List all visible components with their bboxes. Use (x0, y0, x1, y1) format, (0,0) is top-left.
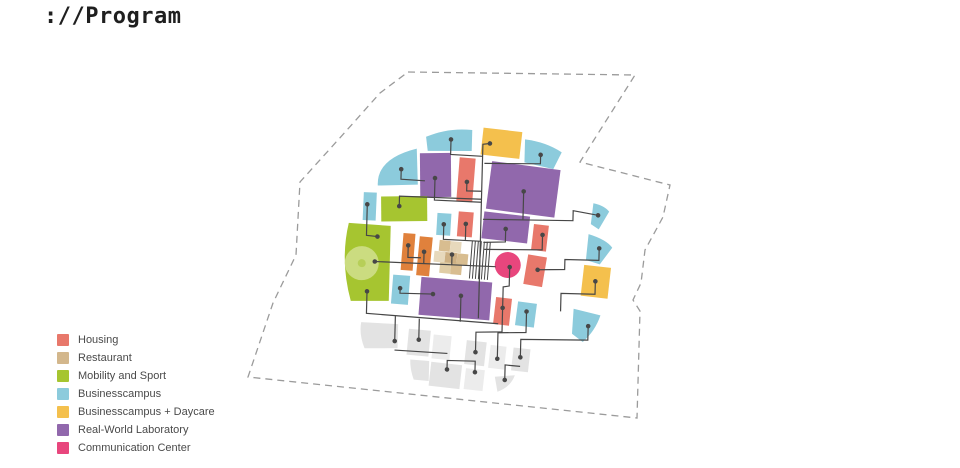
legend-label: Restaurant (78, 352, 132, 364)
legend-item: Businesscampus + Daycare (57, 403, 215, 421)
hatch-line (487, 242, 490, 280)
legend-swatch (57, 334, 69, 346)
legend-swatch (57, 388, 69, 400)
housing-s4 (523, 254, 547, 287)
legend-label: Communication Center (78, 442, 191, 454)
diagram-cluster (341, 124, 615, 395)
hatch-line (484, 242, 487, 280)
legend-label: Housing (78, 334, 118, 346)
restaurant-cell (456, 253, 468, 265)
restaurant-cell (433, 251, 445, 263)
comm-circle (494, 252, 521, 279)
restaurant-cell (439, 240, 451, 252)
connector-line (523, 191, 524, 219)
hatch-line (472, 241, 475, 279)
lab-bottom (418, 277, 492, 320)
ghost-block (429, 362, 463, 389)
legend-item: Mobility and Sport (57, 367, 215, 385)
legend-swatch (57, 442, 69, 454)
connector-line (375, 262, 496, 267)
campus-small-left (363, 192, 377, 221)
legend-label: Businesscampus + Daycare (78, 406, 215, 418)
campus-arc-top-right (524, 139, 562, 169)
legend-swatch (57, 406, 69, 418)
ghost-block (431, 334, 451, 360)
legend-item: Housing (57, 331, 215, 349)
legend-item: Businesscampus (57, 385, 215, 403)
mobility-upper (381, 196, 427, 221)
legend-swatch (57, 370, 69, 382)
program-slide: ://Program HousingRestaurantMobility and… (0, 0, 960, 468)
ghost-wedge-low (410, 359, 430, 380)
legend-swatch (57, 424, 69, 436)
connector-line (395, 316, 396, 341)
hatch-line (475, 241, 478, 279)
hatch-line (469, 241, 472, 279)
hatch-line (481, 242, 484, 280)
legend-label: Mobility and Sport (78, 370, 166, 382)
legend-label: Real-World Laboratory (78, 424, 188, 436)
legend-item: Communication Center (57, 439, 215, 457)
campus-wedge-upper-left (378, 148, 419, 187)
legend-label: Businesscampus (78, 388, 161, 400)
legend-swatch (57, 352, 69, 364)
legend-item: Restaurant (57, 349, 215, 367)
lab-upper (420, 153, 451, 197)
connector-line (419, 319, 420, 340)
restaurant-cell (439, 262, 451, 274)
housing-right (531, 224, 549, 252)
legend: HousingRestaurantMobility and SportBusin… (57, 331, 215, 457)
connector-line (460, 296, 461, 322)
legend-item: Real-World Laboratory (57, 421, 215, 439)
restaurant-cell (450, 241, 462, 253)
ghost-wedge-left (360, 322, 398, 349)
